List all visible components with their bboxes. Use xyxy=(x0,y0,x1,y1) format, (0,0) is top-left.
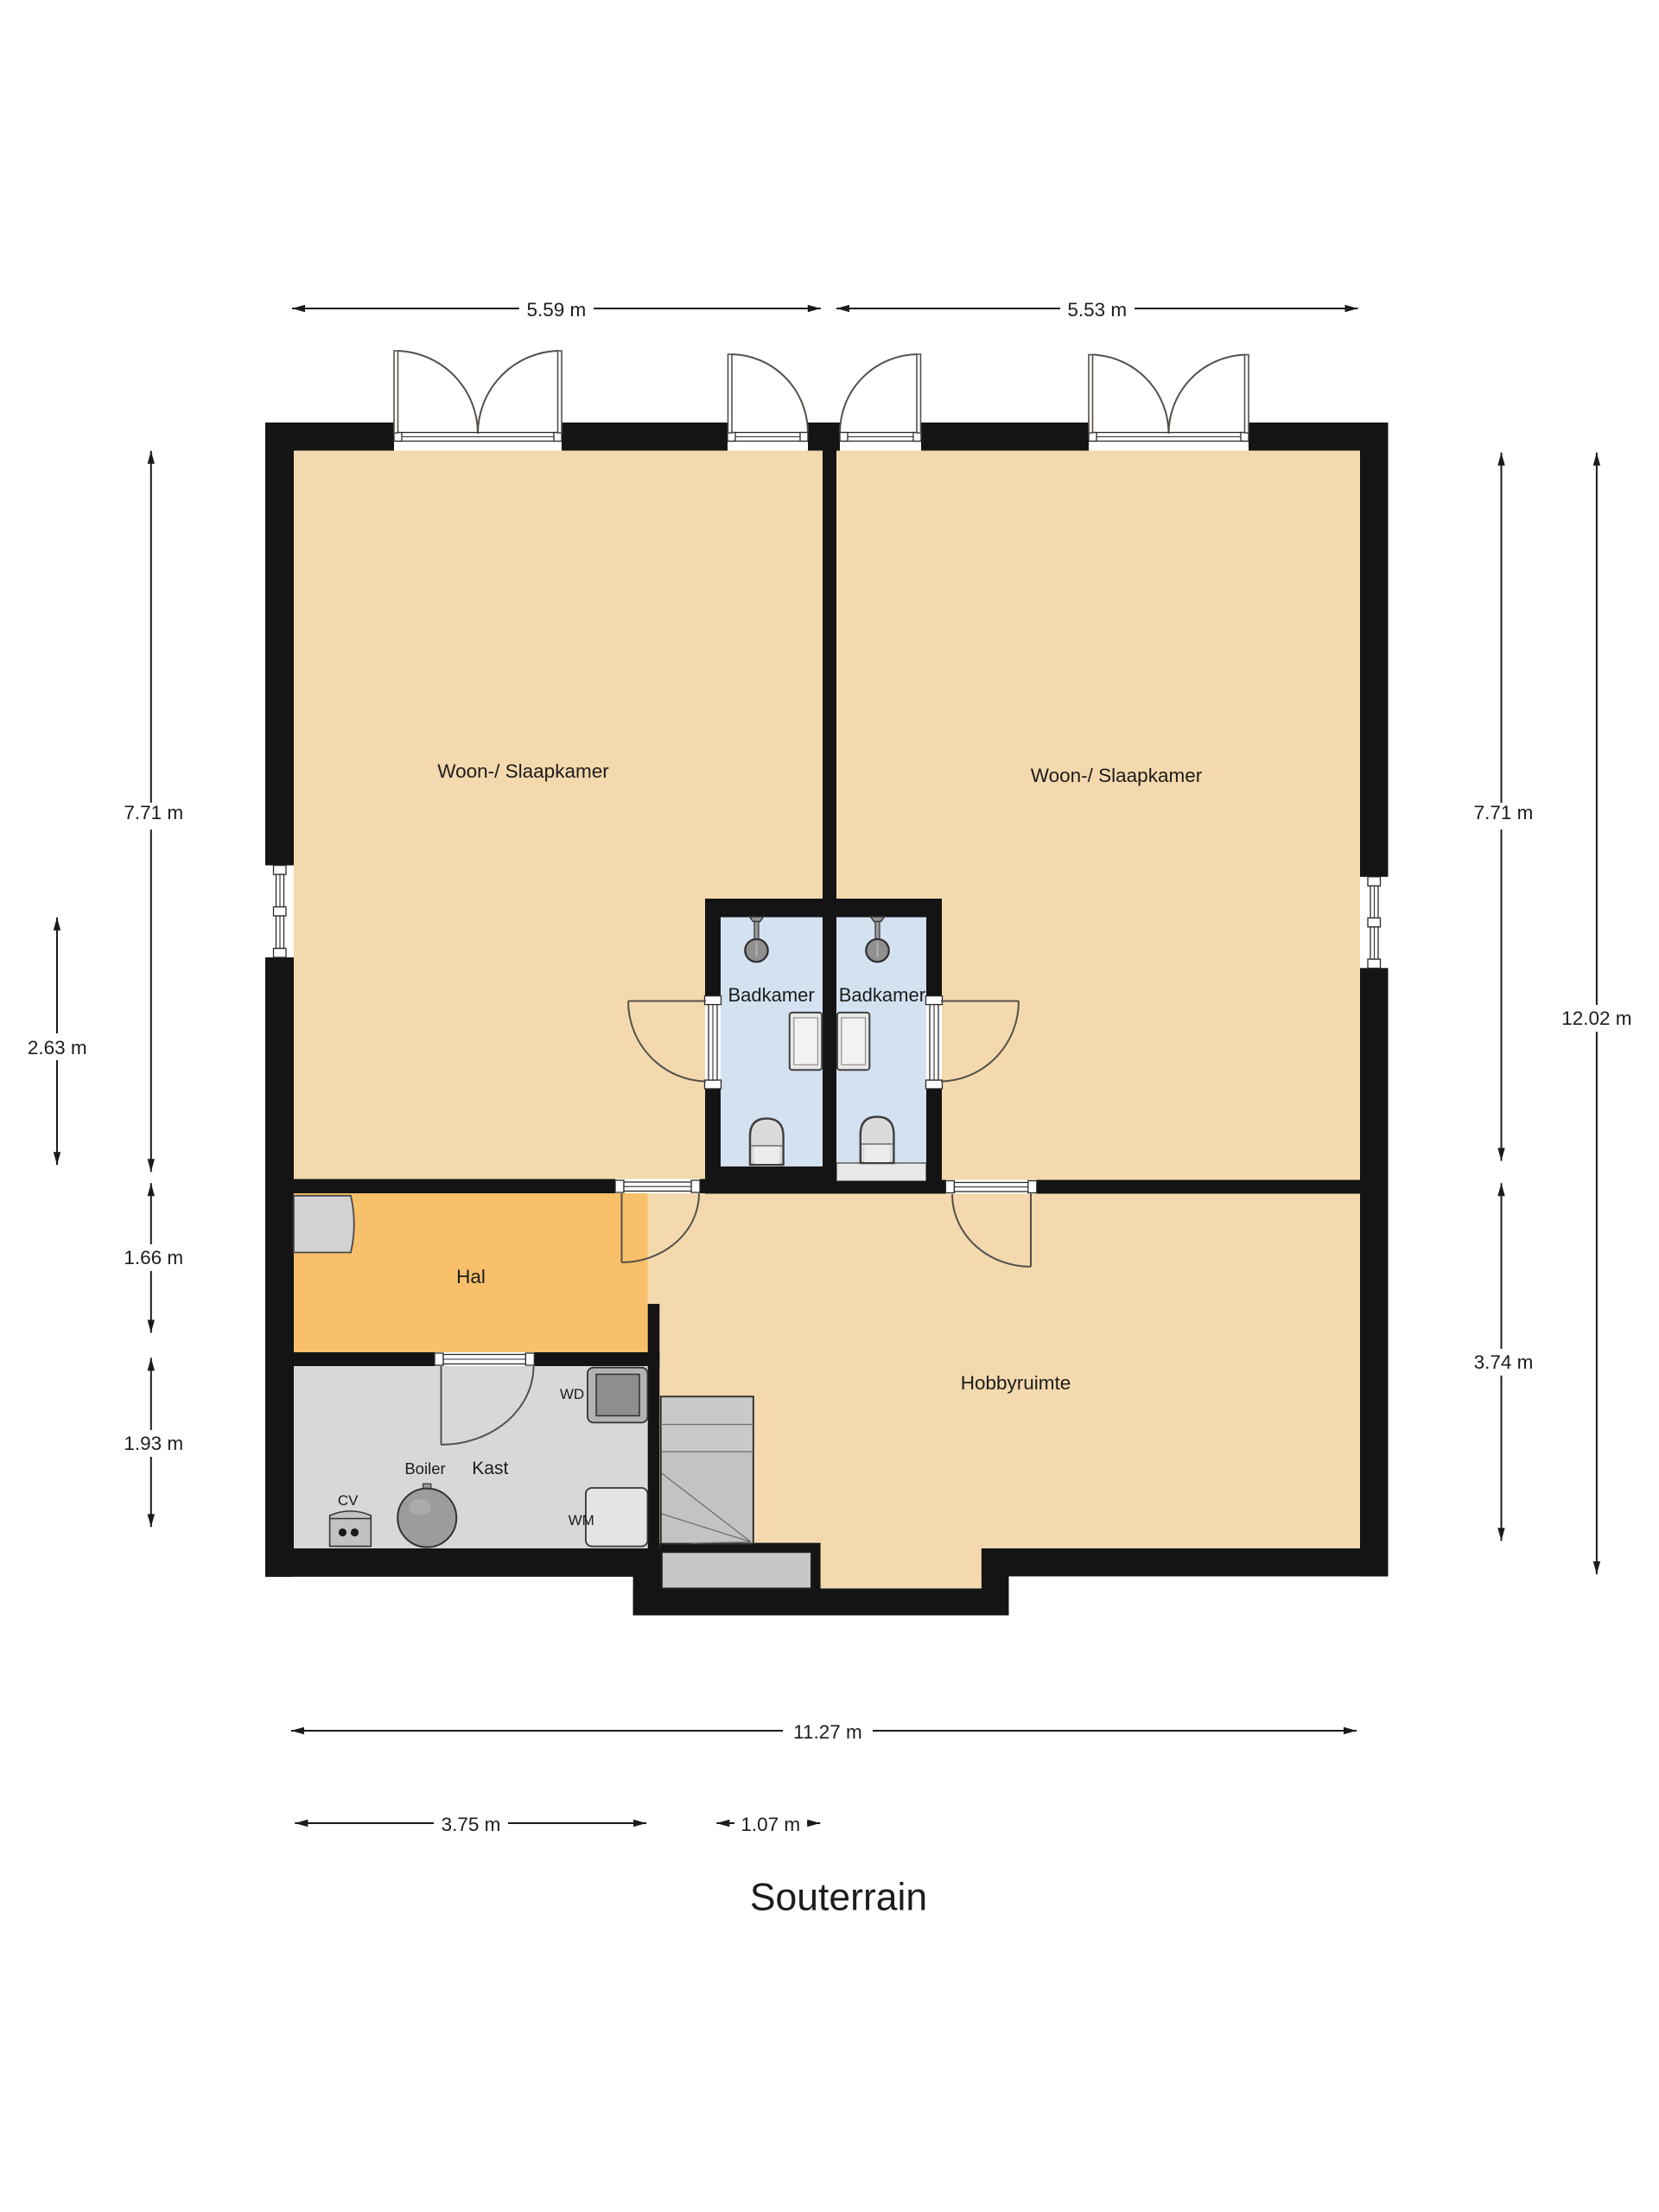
svg-text:12.02 m: 12.02 m xyxy=(1561,1007,1631,1029)
svg-text:3.74 m: 3.74 m xyxy=(1474,1351,1534,1373)
svg-text:Hobbyruimte: Hobbyruimte xyxy=(961,1372,1071,1394)
svg-text:Hal: Hal xyxy=(456,1266,486,1287)
svg-text:7.71 m: 7.71 m xyxy=(124,802,183,823)
svg-text:7.71 m: 7.71 m xyxy=(1474,802,1534,823)
svg-text:WM: WM xyxy=(569,1512,594,1529)
svg-text:1.66 m: 1.66 m xyxy=(124,1247,183,1268)
svg-text:CV: CV xyxy=(338,1492,359,1509)
svg-text:1.07 m: 1.07 m xyxy=(741,1814,800,1835)
svg-text:1.93 m: 1.93 m xyxy=(124,1433,183,1454)
svg-text:WD: WD xyxy=(560,1386,584,1402)
svg-text:5.53 m: 5.53 m xyxy=(1067,299,1127,321)
svg-text:Badkamer: Badkamer xyxy=(728,984,814,1006)
svg-text:Kast: Kast xyxy=(472,1459,508,1478)
svg-text:11.27 m: 11.27 m xyxy=(793,1721,862,1743)
svg-text:Badkamer: Badkamer xyxy=(839,984,925,1006)
svg-text:Souterrain: Souterrain xyxy=(750,1877,927,1919)
svg-text:3.75 m: 3.75 m xyxy=(442,1814,501,1835)
svg-text:5.59 m: 5.59 m xyxy=(527,299,587,321)
svg-text:Woon-/ Slaapkamer: Woon-/ Slaapkamer xyxy=(437,760,609,782)
svg-text:Woon-/ Slaapkamer: Woon-/ Slaapkamer xyxy=(1031,765,1203,786)
svg-text:2.63 m: 2.63 m xyxy=(28,1037,87,1058)
svg-text:Boiler: Boiler xyxy=(404,1459,445,1478)
